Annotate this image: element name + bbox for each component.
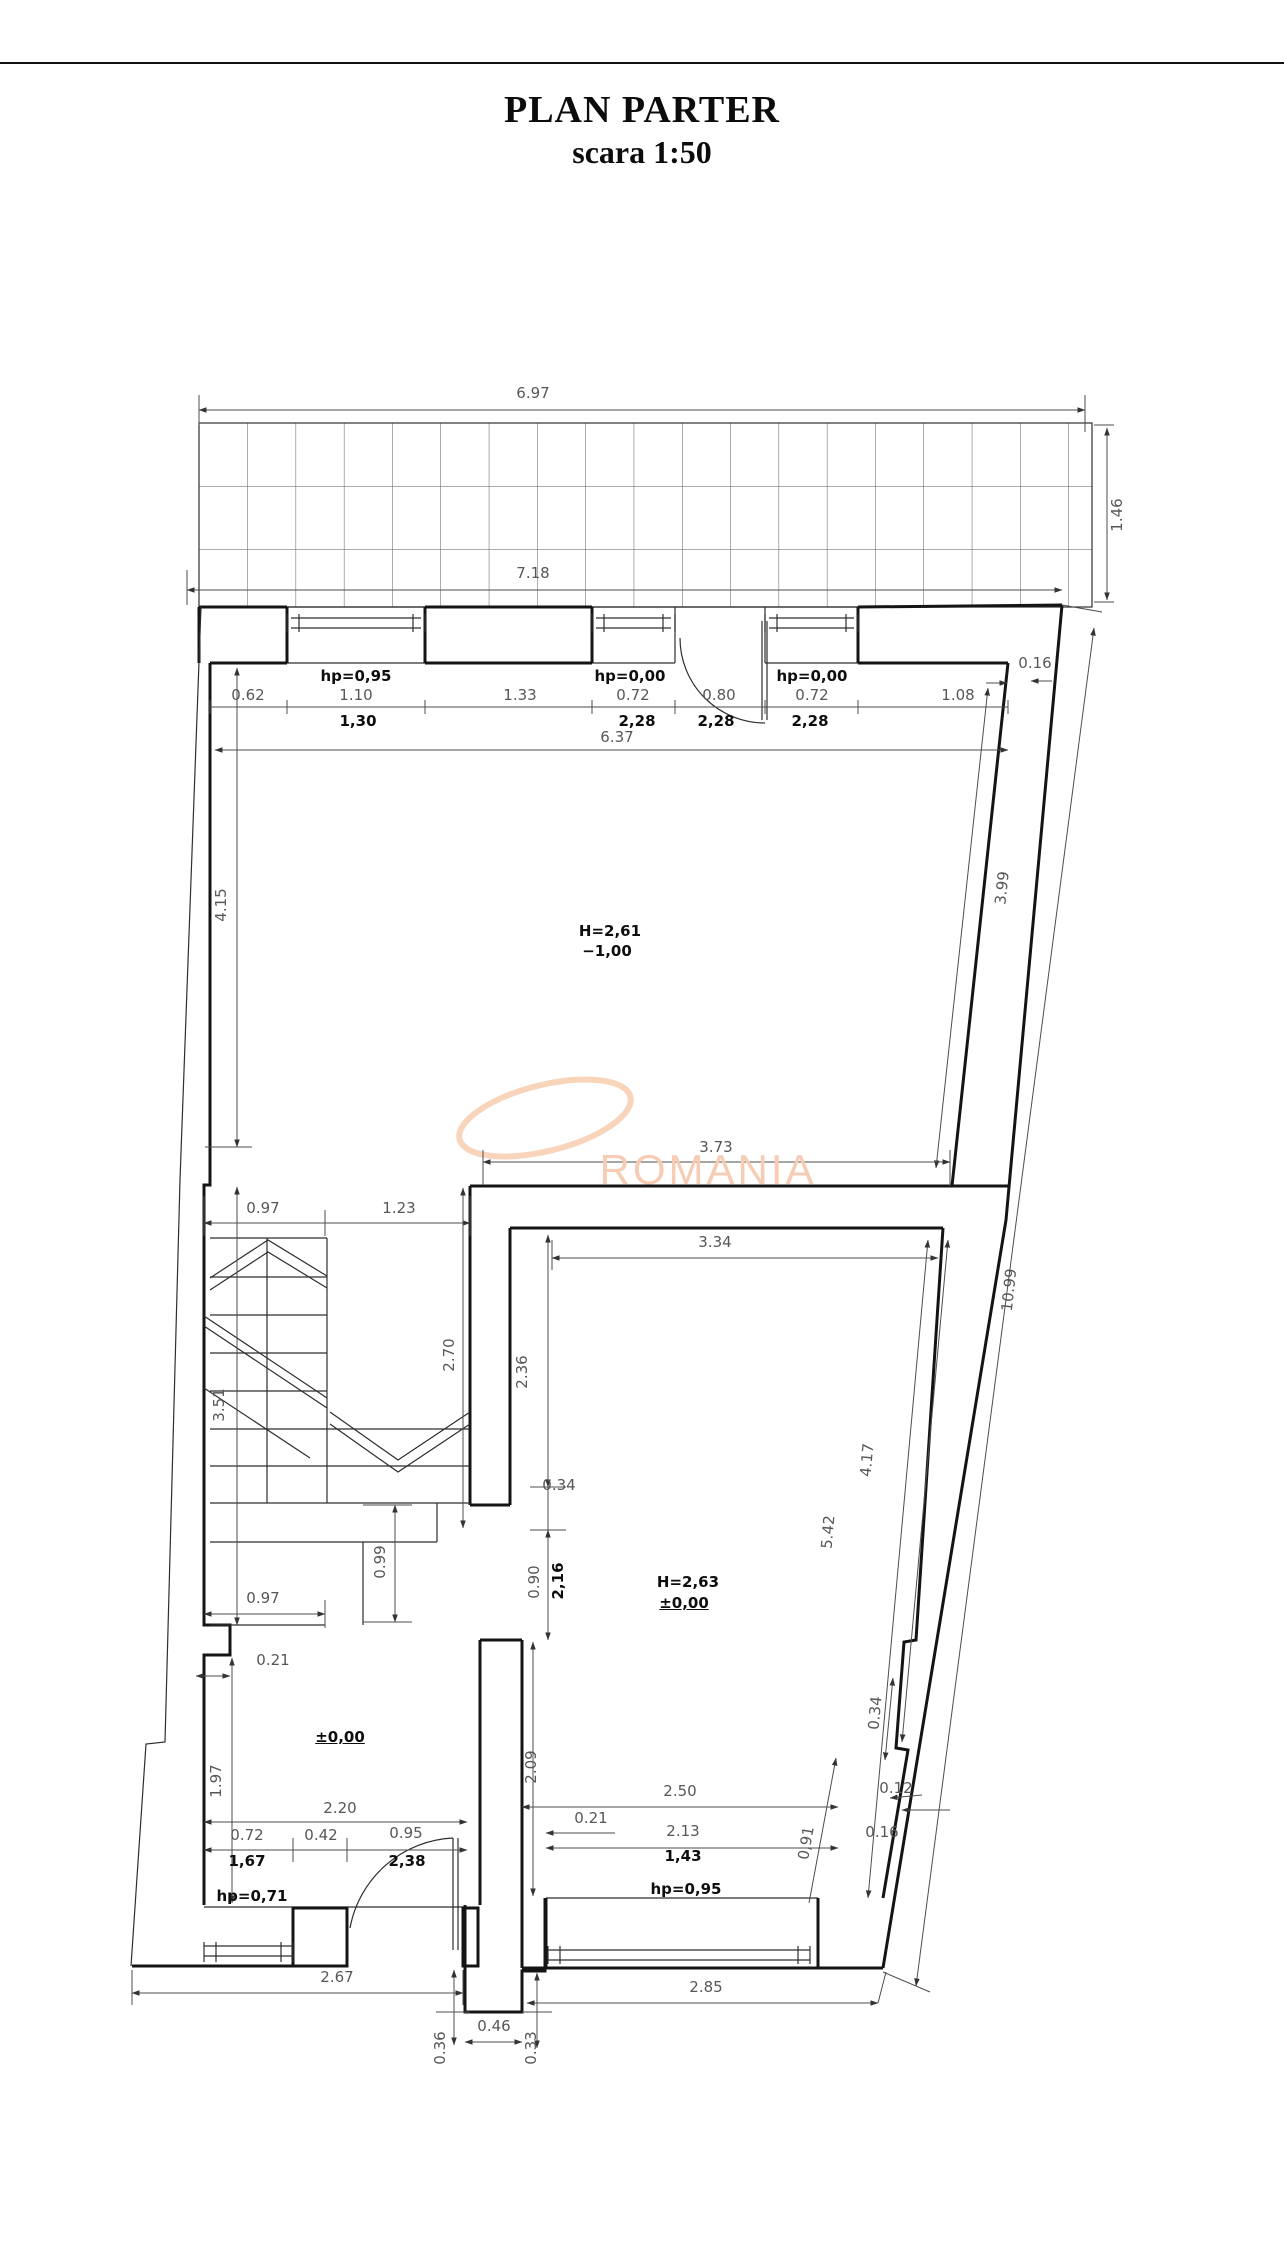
dim-label: 1.33 [503,686,536,704]
dim-label: 0.42 [304,1826,337,1844]
dim-label: 0.90 [525,1565,543,1598]
dim-label: 7.18 [516,564,549,582]
dim-label: 0.16 [1018,654,1051,672]
dim-label: 0.46 [477,2017,510,2035]
dim-label: 2.13 [666,1822,699,1840]
sill-label: hp=0,95 [321,667,392,685]
dim-label: 2.36 [513,1355,531,1388]
terrace-grid [199,423,1092,607]
dim-label: 0.21 [574,1809,607,1827]
dim-label: 0.97 [246,1589,279,1607]
dim-label: 1.10 [339,686,372,704]
sill-label: hp=0,95 [651,1880,722,1898]
dim-label: 3.34 [698,1233,731,1251]
dim-label: 1.46 [1108,498,1126,531]
dim-label: 3.99 [991,870,1012,905]
dimension-lines [132,395,1114,2048]
level-label: ±0,00 [659,1594,709,1612]
dim-label: 0.97 [246,1199,279,1217]
dim-label: 0.99 [371,1545,389,1578]
room-label: H=2,61 [579,922,641,940]
doors [350,621,767,1950]
dim-label: 0.80 [702,686,735,704]
dim-label: 4.17 [857,1443,878,1478]
dim-label: 0.36 [431,2031,449,2064]
dim-label: 1.97 [207,1764,225,1797]
sill-label: hp=0,00 [595,667,666,685]
dim-label: 2.09 [522,1750,540,1783]
dim-label: 0.21 [256,1651,289,1669]
dim-label: 2.67 [320,1968,353,1986]
dim-label: 1,30 [339,712,376,730]
dim-label: 3.73 [699,1138,732,1156]
dim-label: 1,67 [228,1852,265,1870]
dim-label: 0.33 [522,2031,540,2064]
dim-label: 2.70 [440,1338,458,1371]
dim-label: 0.34 [865,1696,886,1731]
dim-label: 2.20 [323,1799,356,1817]
dim-label: 0.62 [231,686,264,704]
dim-label: 0.34 [542,1476,575,1494]
dim-label: 4.15 [212,888,230,921]
dim-label: 2.50 [663,1782,696,1800]
dim-label: 1.08 [941,686,974,704]
dim-label: 0.72 [230,1826,263,1844]
sill-label: hp=0,71 [217,1887,288,1905]
dim-label: 5.42 [818,1515,839,1550]
sill-label: hp=0,00 [777,667,848,685]
dim-label: 0.72 [795,686,828,704]
dim-label: 0.12 [879,1779,912,1797]
dim-label: 2,16 [549,1562,567,1599]
level-label: ±0,00 [315,1728,365,1746]
dim-label: 0.16 [865,1823,898,1841]
dim-label: 1,43 [664,1847,701,1865]
dim-label: 2,28 [791,712,828,730]
staircase [204,1238,470,1625]
dim-label: 2.85 [689,1978,722,1996]
dim-label: 2,28 [697,712,734,730]
dim-label: 6.97 [516,384,549,402]
room-label: H=2,63 [657,1573,719,1591]
dim-label: 3.51 [210,1388,228,1421]
walls [131,605,1062,2012]
dim-label: 2,38 [388,1852,425,1870]
floor-plan-page: PLAN PARTER scara 1:50 [0,0,1284,2242]
floor-plan-drawing [0,0,1284,2242]
dim-label: 6.37 [600,728,633,746]
dim-label: 1.23 [382,1199,415,1217]
dim-label: 0.95 [389,1824,422,1842]
dim-label: 0.72 [616,686,649,704]
level-label: −1,00 [582,942,632,960]
